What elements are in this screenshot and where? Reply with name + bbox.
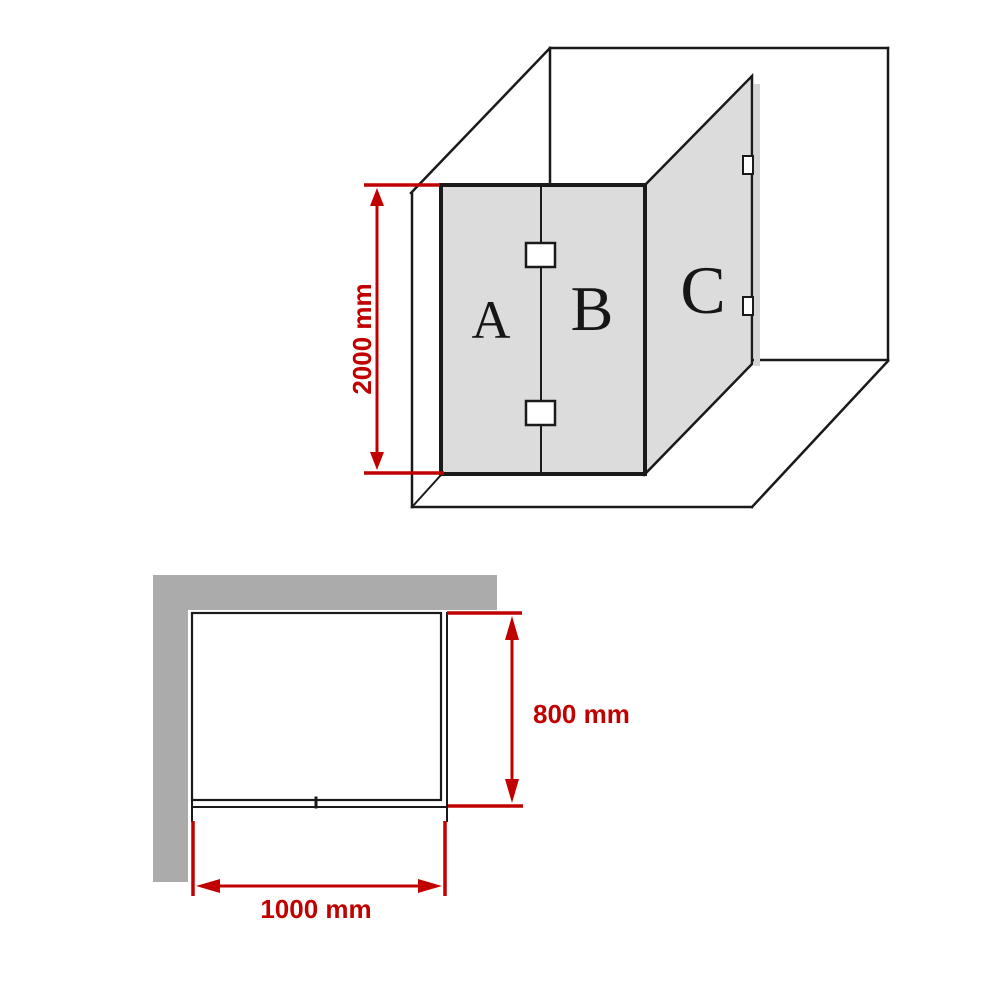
room-floor-corner-diagonal <box>412 475 441 507</box>
shower-footprint <box>192 613 441 800</box>
figure-3d-perspective: A B C 2000 mm <box>347 48 888 507</box>
height-dimension-label: 2000 mm <box>347 283 377 394</box>
figure-plan-view: 800 mm 1000 mm <box>153 575 630 924</box>
bracket-top <box>743 156 753 174</box>
panel-c-label: C <box>680 252 725 328</box>
arrowhead-down-icon <box>505 779 519 803</box>
arrowhead-down-icon <box>370 452 384 470</box>
width-dimension-1000: 1000 mm <box>193 821 445 924</box>
arrowhead-up-icon <box>370 188 384 206</box>
height-dimension-2000: 2000 mm <box>347 185 444 473</box>
panel-b-label: B <box>571 273 614 344</box>
width-dimension-label: 1000 mm <box>260 894 371 924</box>
room-floor-right-diagonal <box>752 361 888 507</box>
shower-screen-diagram-page: A B C 2000 mm <box>0 0 1000 1000</box>
bracket-bottom <box>743 297 753 315</box>
arrowhead-up-icon <box>505 616 519 640</box>
hinge-bottom <box>526 401 555 425</box>
depth-dimension-label: 800 mm <box>533 699 630 729</box>
depth-dimension-800: 800 mm <box>447 613 630 806</box>
diagram-canvas: A B C 2000 mm <box>0 0 1000 1000</box>
panel-a-label: A <box>472 290 511 350</box>
arrowhead-left-icon <box>196 879 220 893</box>
arrowhead-right-icon <box>418 879 442 893</box>
room-left-diagonal-edge <box>411 48 550 193</box>
hinge-top <box>526 243 555 267</box>
